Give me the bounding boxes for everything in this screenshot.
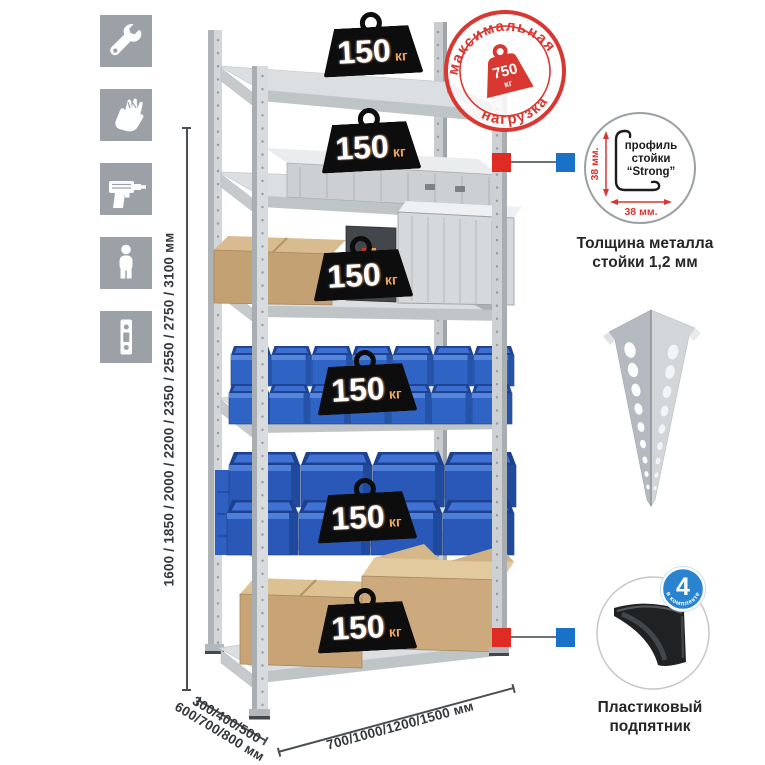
shelf-load-weight-1: 150кг	[320, 9, 423, 78]
load-unit: кг	[393, 144, 407, 159]
connector-line-bottom	[511, 636, 557, 638]
load-unit: кг	[389, 624, 403, 639]
foot-caption: Пластиковый подпятник	[575, 698, 725, 736]
foot-caption-line1: Пластиковый	[575, 698, 725, 717]
load-value: 150	[330, 610, 385, 645]
shelf-load-weight-2: 150кг	[318, 105, 421, 174]
angle-post-image	[593, 300, 708, 525]
profile-caption: Толщина металла стойки 1,2 мм	[570, 234, 720, 272]
shelf-load-weight-5: 150кг	[314, 475, 417, 544]
post-profile-detail: 38 мм. 38 мм. профиль стойки “Strong”	[583, 111, 697, 225]
profile-dim-h-label: 38 мм.	[624, 206, 657, 218]
infographic-canvas: 1600 / 1850 / 2000 / 2200 / 2350 / 2550 …	[0, 0, 765, 765]
load-value: 150	[330, 500, 385, 535]
max-load-stamp: максимальная нагрузка 750 кг	[440, 6, 570, 136]
load-value: 150	[334, 130, 389, 165]
load-unit: кг	[385, 272, 399, 287]
profile-caption-line2: стойки 1,2 мм	[570, 253, 720, 272]
load-unit: кг	[395, 48, 409, 63]
callout-marker-blue-top	[556, 153, 575, 172]
load-value: 150	[336, 34, 391, 69]
shelf-load-weight-6: 150кг	[314, 585, 417, 654]
profile-label-1: профиль	[625, 140, 678, 152]
front-left-post	[249, 66, 270, 720]
load-value: 150	[326, 258, 381, 293]
profile-label-3: “Strong”	[627, 166, 676, 178]
callout-marker-red-top	[492, 153, 511, 172]
shelf-load-weight-3: 150кг	[310, 233, 413, 302]
kit-count-badge: 4 в комплекте	[658, 564, 708, 614]
load-value: 150	[330, 372, 385, 407]
profile-caption-line1: Толщина металла	[570, 234, 720, 253]
badge-count: 4	[676, 573, 690, 601]
callout-marker-red-bottom	[492, 628, 511, 647]
callout-marker-blue-bottom	[556, 628, 575, 647]
load-unit: кг	[389, 386, 403, 401]
connector-line-top	[511, 161, 557, 163]
shelf-load-weight-4: 150кг	[314, 347, 417, 416]
profile-label-2: стойки	[632, 153, 671, 165]
profile-dim-v-label: 38 мм.	[589, 147, 601, 180]
back-left-post	[205, 30, 224, 654]
foot-caption-line2: подпятник	[575, 717, 725, 736]
load-unit: кг	[389, 514, 403, 529]
